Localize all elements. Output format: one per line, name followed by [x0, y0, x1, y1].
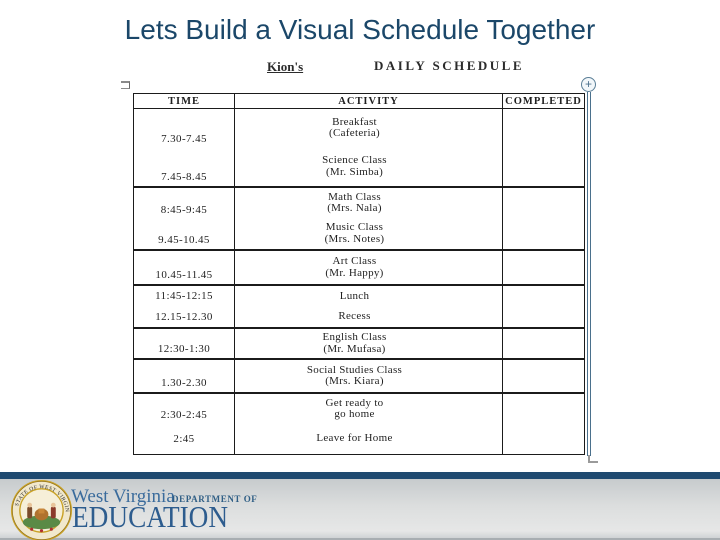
schedule-row-group: 2:30-2:45Get ready togo home2:45Leave fo… — [134, 392, 584, 454]
org-education-text: EDUCATION — [72, 501, 228, 532]
time-cell[interactable]: 2:30-2:45 — [134, 394, 235, 424]
activity-line: Recess — [235, 311, 474, 323]
time-cell[interactable]: 9.45-10.45 — [134, 219, 235, 250]
activity-line: (Mrs. Notes) — [235, 234, 474, 246]
activity-line: (Mr. Happy) — [235, 268, 474, 280]
schedule-row-group: 10.45-11.45Art Class(Mr. Happy) — [134, 249, 584, 284]
schedule-entry-row: 2:45Leave for Home — [134, 424, 584, 454]
slide-title: Lets Build a Visual Schedule Together — [0, 14, 720, 46]
footer-accent-bar — [0, 472, 720, 479]
time-cell[interactable]: 2:45 — [134, 424, 235, 454]
activity-cell[interactable]: Leave for Home — [235, 424, 503, 454]
schedule-row-group: 8:45-9:45Math Class(Mrs. Nala)9.45-10.45… — [134, 186, 584, 249]
completed-cell[interactable] — [503, 424, 584, 454]
schedule-entry-row: 11:45-12:15Lunch — [134, 286, 584, 307]
schedule-owner-name[interactable]: Kion's — [267, 59, 303, 75]
schedule-entry-row: 1.30-2.30Social Studies Class(Mrs. Kiara… — [134, 360, 584, 392]
schedule-row-group: 12:30-1:30English Class(Mr. Mufasa) — [134, 327, 584, 358]
column-header-activity: ACTIVITY — [235, 94, 503, 108]
resize-handle-icon[interactable] — [588, 455, 598, 463]
time-cell[interactable]: 12:30-1:30 — [134, 329, 235, 358]
schedule-row-group: 11:45-12:15Lunch12.15-12.30Recess — [134, 284, 584, 327]
schedule-row-group: 7.30-7.45Breakfast(Cafeteria)7.45-8.45Sc… — [134, 109, 584, 186]
completed-cell[interactable] — [503, 329, 584, 358]
activity-line: Art Class — [235, 256, 474, 268]
schedule-entry-row: 8:45-9:45Math Class(Mrs. Nala) — [134, 188, 584, 219]
time-cell[interactable]: 7.45-8.45 — [134, 148, 235, 187]
activity-cell[interactable]: Science Class(Mr. Simba) — [235, 148, 503, 187]
activity-line: (Mrs. Nala) — [235, 203, 474, 215]
completed-cell[interactable] — [503, 219, 584, 250]
schedule-entry-row: 2:30-2:45Get ready togo home — [134, 394, 584, 424]
activity-cell[interactable]: Lunch — [235, 286, 503, 307]
completed-cell[interactable] — [503, 286, 584, 307]
completed-cell[interactable] — [503, 307, 584, 328]
schedule-entry-row: 10.45-11.45Art Class(Mr. Happy) — [134, 251, 584, 284]
table-header-row: TIME ACTIVITY COMPLETED — [134, 94, 584, 109]
object-anchor-icon — [121, 81, 130, 89]
daily-schedule-table[interactable]: TIME ACTIVITY COMPLETED 7.30-7.45Breakfa… — [133, 93, 585, 455]
time-cell[interactable]: 12.15-12.30 — [134, 307, 235, 328]
activity-line: go home — [235, 409, 474, 421]
activity-line: Lunch — [235, 291, 474, 303]
presentation-slide: Lets Build a Visual Schedule Together Ki… — [0, 0, 720, 540]
document-edge-scrollbar[interactable] — [587, 92, 591, 456]
column-header-completed: COMPLETED — [503, 94, 584, 108]
time-cell[interactable]: 10.45-11.45 — [134, 251, 235, 284]
completed-cell[interactable] — [503, 251, 584, 284]
completed-cell[interactable] — [503, 188, 584, 219]
column-header-time: TIME — [134, 94, 235, 108]
table-body: 7.30-7.45Breakfast(Cafeteria)7.45-8.45Sc… — [134, 109, 584, 454]
plus-icon[interactable]: + — [581, 77, 596, 92]
schedule-entry-row: 12:30-1:30English Class(Mr. Mufasa) — [134, 329, 584, 358]
activity-cell[interactable]: Get ready togo home — [235, 394, 503, 424]
time-cell[interactable]: 11:45-12:15 — [134, 286, 235, 307]
activity-cell[interactable]: English Class(Mr. Mufasa) — [235, 329, 503, 358]
activity-line: (Cafeteria) — [235, 128, 474, 140]
schedule-entry-row: 9.45-10.45Music Class(Mrs. Notes) — [134, 219, 584, 250]
schedule-entry-row: 7.45-8.45Science Class(Mr. Simba) — [134, 148, 584, 187]
schedule-entry-row: 7.30-7.45Breakfast(Cafeteria) — [134, 109, 584, 148]
activity-line: (Mrs. Kiara) — [235, 376, 474, 388]
completed-cell[interactable] — [503, 148, 584, 187]
completed-cell[interactable] — [503, 109, 584, 148]
completed-cell[interactable] — [503, 394, 584, 424]
schedule-row-group: 1.30-2.30Social Studies Class(Mrs. Kiara… — [134, 358, 584, 392]
schedule-document-title[interactable]: DAILY SCHEDULE — [374, 58, 524, 74]
completed-cell[interactable] — [503, 360, 584, 392]
time-cell[interactable]: 1.30-2.30 — [134, 360, 235, 392]
schedule-entry-row: 12.15-12.30Recess — [134, 307, 584, 328]
time-cell[interactable]: 8:45-9:45 — [134, 188, 235, 219]
activity-line: (Mr. Simba) — [235, 167, 474, 179]
activity-line: Leave for Home — [235, 433, 474, 445]
activity-cell[interactable]: Social Studies Class(Mrs. Kiara) — [235, 360, 503, 392]
activity-cell[interactable]: Recess — [235, 307, 503, 328]
activity-cell[interactable]: Math Class(Mrs. Nala) — [235, 188, 503, 219]
activity-cell[interactable]: Music Class(Mrs. Notes) — [235, 219, 503, 250]
activity-line: (Mr. Mufasa) — [235, 344, 474, 356]
activity-cell[interactable]: Breakfast(Cafeteria) — [235, 109, 503, 148]
activity-line: English Class — [235, 332, 474, 344]
activity-cell[interactable]: Art Class(Mr. Happy) — [235, 251, 503, 284]
wv-state-seal-icon: STATE OF WEST VIRGINIA — [10, 479, 73, 540]
time-cell[interactable]: 7.30-7.45 — [134, 109, 235, 148]
